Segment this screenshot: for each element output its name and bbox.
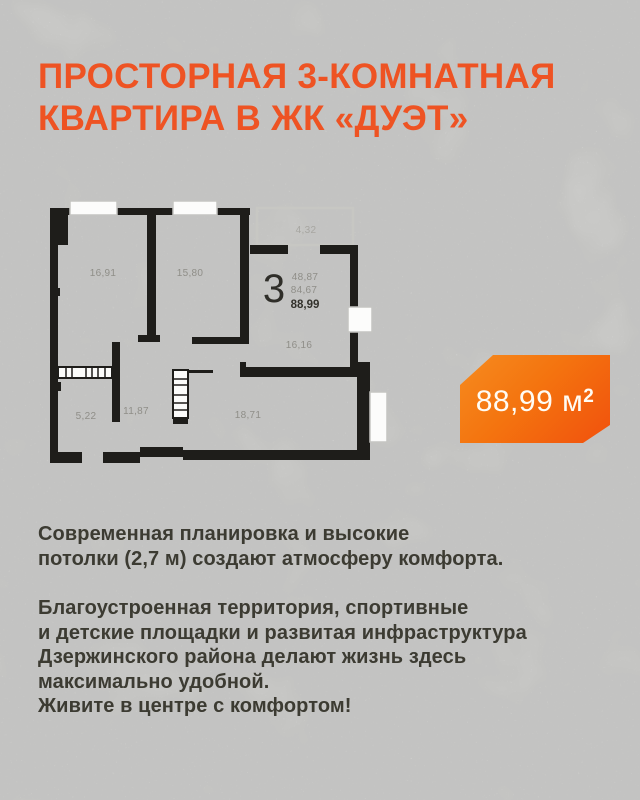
label-bedroom-2: 15,80 [177,268,204,279]
paragraph-infrastructure: Благоустроенная территория, спортивные и… [38,596,527,719]
area-badge-text: 88,99 м2 [476,379,595,419]
label-living-space: 48,87 [292,272,319,283]
window-top-right [173,201,217,215]
paragraph-planning: Современная планировка и высокие потолки… [38,522,503,571]
label-bedroom-1: 16,91 [90,268,117,279]
area-value: 88,99 м [476,385,584,418]
label-total-area: 88,99 [291,299,320,311]
label-bathroom: 5,22 [76,411,97,422]
label-kitchen-living: 16,16 [286,340,313,351]
wardrobe-vertical [173,370,188,418]
french-door-right [370,392,387,442]
label-area-without-balcony: 84,67 [291,285,318,296]
label-hallway: 11,87 [123,406,149,417]
area-superscript: 2 [583,386,594,407]
label-balcony: 4,32 [296,225,317,236]
window-top-left [70,201,117,215]
label-kitchen-dining: 18,71 [235,410,262,421]
floor-plan-walls [50,208,370,463]
window-right [348,307,372,332]
page-title: ПРОСТОРНАЯ 3-КОМНАТНАЯ КВАРТИРА В ЖК «ДУ… [38,56,556,140]
label-room-count: 3 [263,267,285,311]
area-badge: 88,99 м2 [460,355,610,443]
floor-plan: 16,91 15,80 4,32 3 48,87 84,67 88,99 16,… [35,188,395,478]
